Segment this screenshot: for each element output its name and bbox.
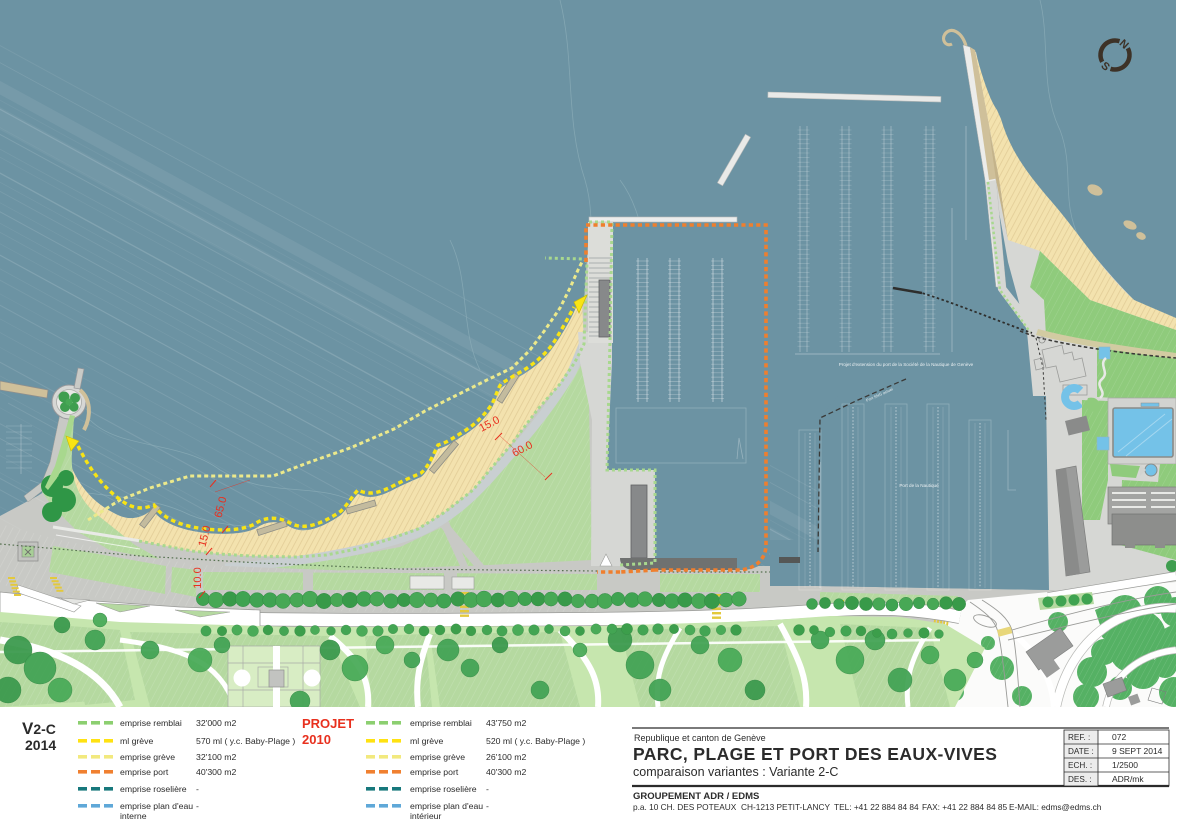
svg-text:520 ml ( y.c. Baby-Plage ): 520 ml ( y.c. Baby-Plage ) xyxy=(486,736,585,746)
svg-text:-: - xyxy=(486,801,489,811)
svg-text:DES. :: DES. : xyxy=(1068,775,1092,784)
svg-text:570 ml ( y.c. Baby-Plage ): 570 ml ( y.c. Baby-Plage ) xyxy=(196,736,295,746)
svg-text:26'100 m2: 26'100 m2 xyxy=(486,752,526,762)
svg-text:comparaison variantes : Varian: comparaison variantes : Variante 2-C xyxy=(633,765,838,779)
svg-text:emprise roselière: emprise roselière xyxy=(120,784,187,794)
svg-text:emprise roselière: emprise roselière xyxy=(410,784,477,794)
svg-text:DATE :: DATE : xyxy=(1068,747,1094,756)
svg-text:-: - xyxy=(486,784,489,794)
svg-text:intérieur: intérieur xyxy=(410,811,441,821)
svg-text:Projet d'extension du port de: Projet d'extension du port de la Société… xyxy=(839,362,974,367)
svg-text:E-MAIL: edms@edms.ch: E-MAIL: edms@edms.ch xyxy=(1009,802,1102,812)
svg-text:072: 072 xyxy=(1112,732,1126,742)
svg-text:REF. :: REF. : xyxy=(1068,733,1090,742)
svg-text:interne: interne xyxy=(120,811,147,821)
svg-text:-: - xyxy=(196,784,199,794)
svg-text:32'000 m2: 32'000 m2 xyxy=(196,718,236,728)
svg-text:PARC, PLAGE ET PORT DES EAUX-V: PARC, PLAGE ET PORT DES EAUX-VIVES xyxy=(633,744,997,764)
svg-text:2010: 2010 xyxy=(302,732,331,747)
svg-text:FAX: +41 22 884 84 85: FAX: +41 22 884 84 85 xyxy=(922,802,1007,812)
svg-text:ECH. :: ECH. : xyxy=(1068,761,1092,770)
svg-text:ml grève: ml grève xyxy=(410,736,443,746)
svg-text:p.a. 10 CH. DES POTEAUX: p.a. 10 CH. DES POTEAUX xyxy=(633,802,737,812)
svg-text:PROJET: PROJET xyxy=(302,716,354,731)
svg-text:emprise grève: emprise grève xyxy=(410,752,465,762)
svg-text:ml grève: ml grève xyxy=(120,736,153,746)
svg-text:emprise grève: emprise grève xyxy=(120,752,175,762)
svg-text:9 SEPT 2014: 9 SEPT 2014 xyxy=(1112,746,1163,756)
svg-text:Port de la Nautique: Port de la Nautique xyxy=(899,483,939,488)
svg-text:2014: 2014 xyxy=(25,737,56,753)
svg-text:emprise port: emprise port xyxy=(410,767,459,777)
svg-text:emprise plan d'eau: emprise plan d'eau xyxy=(410,801,483,811)
svg-text:-: - xyxy=(196,801,199,811)
svg-text:emprise remblai: emprise remblai xyxy=(120,718,182,728)
svg-text:Republique et canton de Genève: Republique et canton de Genève xyxy=(634,733,766,743)
svg-text:emprise remblai: emprise remblai xyxy=(410,718,472,728)
svg-text:10.0: 10.0 xyxy=(192,567,204,588)
svg-text:1/2500: 1/2500 xyxy=(1112,760,1138,770)
svg-text:ADR/mk: ADR/mk xyxy=(1112,774,1144,784)
svg-text:CH-1213 PETIT-LANCY: CH-1213 PETIT-LANCY xyxy=(741,802,830,812)
svg-text:V2-C: V2-C xyxy=(22,719,56,738)
svg-text:emprise plan d'eau: emprise plan d'eau xyxy=(120,801,193,811)
svg-text:TEL: +41 22 884 84 84: TEL: +41 22 884 84 84 xyxy=(834,802,919,812)
svg-text:43'750 m2: 43'750 m2 xyxy=(486,718,526,728)
svg-text:GROUPEMENT ADR / EDMS: GROUPEMENT ADR / EDMS xyxy=(633,791,759,802)
svg-text:emprise port: emprise port xyxy=(120,767,169,777)
svg-text:40'300 m2: 40'300 m2 xyxy=(486,767,526,777)
svg-text:40'300 m2: 40'300 m2 xyxy=(196,767,236,777)
svg-text:32'100 m2: 32'100 m2 xyxy=(196,752,236,762)
